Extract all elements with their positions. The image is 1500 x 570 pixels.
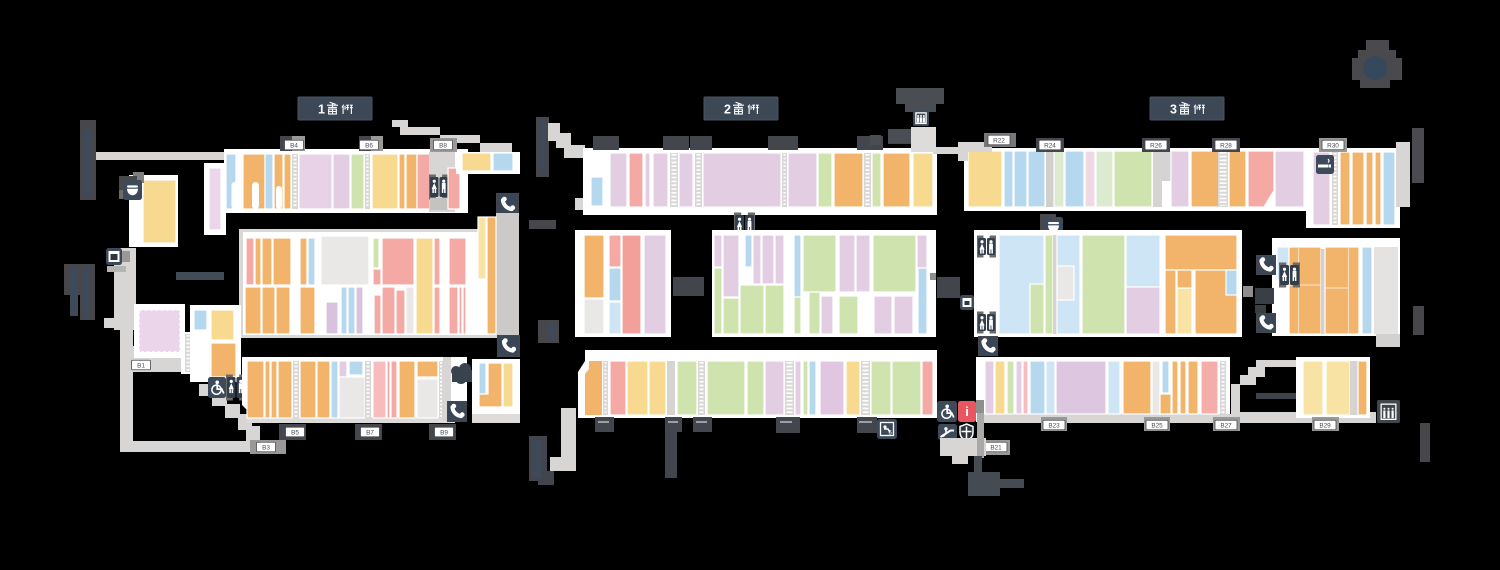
svg-text:B21: B21: [990, 444, 1002, 451]
svg-text:B3: B3: [262, 444, 270, 451]
svg-text:R26: R26: [1150, 142, 1162, 149]
svg-text:1: 1: [318, 103, 325, 117]
svg-text:B9: B9: [440, 429, 448, 436]
svg-text:B1: B1: [137, 362, 145, 369]
svg-text:3: 3: [1170, 103, 1177, 117]
svg-text:B8: B8: [439, 142, 447, 149]
svg-text:B7: B7: [366, 429, 374, 436]
svg-text:B4: B4: [290, 142, 298, 149]
svg-text:i: i: [965, 404, 969, 419]
svg-text:B29: B29: [1319, 422, 1331, 429]
svg-text:R28: R28: [1220, 142, 1232, 149]
svg-text:R22: R22: [993, 137, 1005, 144]
svg-text:B27: B27: [1220, 422, 1232, 429]
svg-text:2: 2: [724, 103, 731, 117]
svg-text:R30: R30: [1327, 142, 1339, 149]
svg-text:R24: R24: [1044, 142, 1056, 149]
svg-text:B5: B5: [291, 429, 299, 436]
svg-text:B25: B25: [1151, 422, 1163, 429]
svg-text:B23: B23: [1048, 422, 1060, 429]
svg-text:B6: B6: [365, 142, 373, 149]
